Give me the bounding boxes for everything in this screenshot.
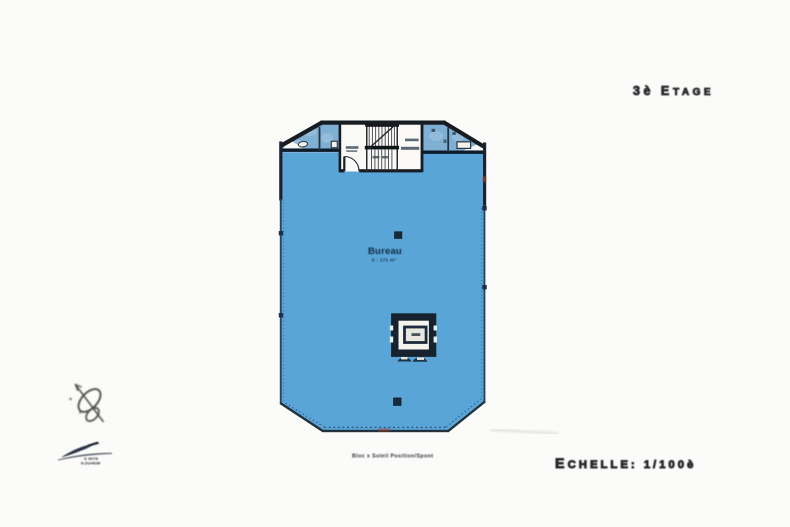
svg-text:S : 171 m²: S : 171 m² [372,258,397,263]
svg-text:G INITE: G INITE [84,457,99,461]
svg-text:ECHELLE: 1/100è: ECHELLE: 1/100è [555,456,696,472]
svg-text:3è ETAGE: 3è ETAGE [633,84,714,98]
svg-text:Bloc x Soleil Position/Spont: Bloc x Soleil Position/Spont [352,454,433,460]
svg-text:N.DUHEIM: N.DUHEIM [81,462,100,466]
svg-text:Bureau: Bureau [368,246,402,257]
